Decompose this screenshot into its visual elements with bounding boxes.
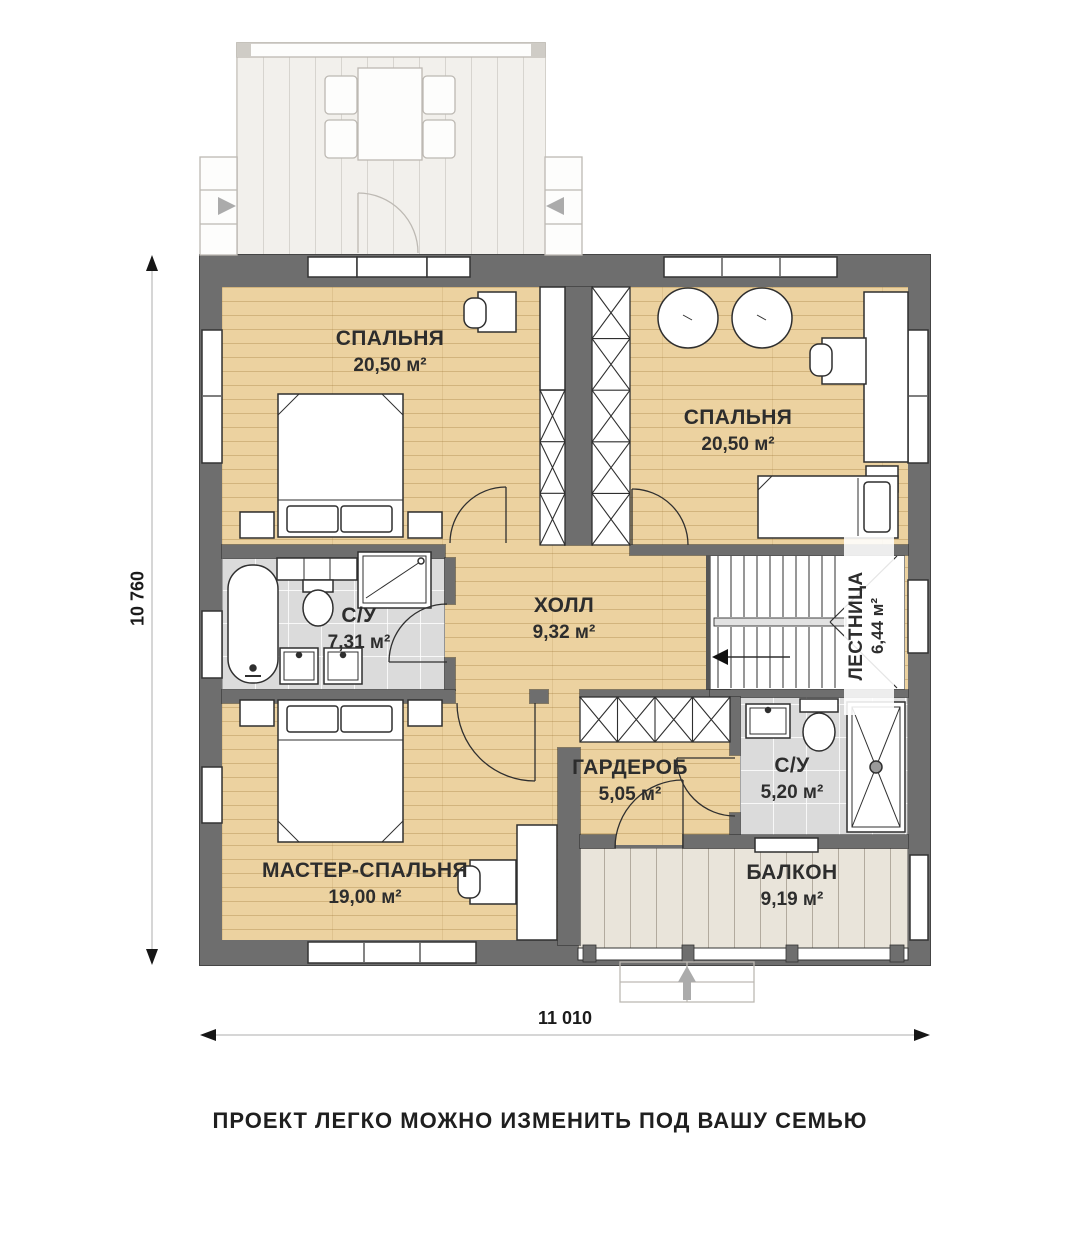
dimension-height-label: 10 760	[128, 554, 149, 644]
wall	[445, 558, 455, 604]
room-area: 5,20 м²	[692, 781, 892, 804]
room-label-master-bedroom: МАСТЕР-СПАЛЬНЯ 19,00 м²	[245, 858, 485, 909]
room-name: БАЛКОН	[692, 860, 892, 886]
wall	[222, 545, 445, 558]
room-label-bathroom-right: С/У 5,20 м²	[692, 753, 892, 804]
wall	[530, 690, 548, 703]
wall	[580, 835, 615, 848]
room-label-balcony: БАЛКОН 9,19 м²	[692, 860, 892, 911]
terrace-ghost-floor	[237, 43, 545, 257]
terrace-arrow-left-icon	[546, 197, 564, 215]
room-label-bathroom-left: С/У 7,31 м²	[259, 603, 459, 654]
entry-stairs-ghost	[620, 962, 754, 1002]
room-name: ЛЕСТНИЦА	[845, 541, 868, 711]
room-area: 6,44 м²	[868, 541, 889, 711]
floor-plan-page: СПАЛЬНЯ 20,50 м² СПАЛЬНЯ 20,50 м² ХОЛЛ 9…	[0, 0, 1080, 1243]
wall	[222, 690, 455, 703]
room-name: С/У	[259, 603, 459, 629]
caption: ПРОЕКТ ЛЕГКО МОЖНО ИЗМЕНИТЬ ПОД ВАШУ СЕМ…	[0, 1108, 1080, 1134]
room-area: 19,00 м²	[245, 886, 485, 909]
entry-arrow-up-icon	[678, 966, 696, 982]
dimension-width-label: 11 010	[480, 1008, 650, 1029]
terrace-arrow-right-icon	[218, 197, 236, 215]
room-area: 9,19 м²	[692, 888, 892, 911]
room-label-hall: ХОЛЛ 9,32 м²	[464, 593, 664, 644]
wall	[445, 658, 455, 690]
wall	[565, 287, 592, 545]
room-area: 9,32 м²	[464, 621, 664, 644]
room-label-bedroom-tr: СПАЛЬНЯ 20,50 м²	[638, 405, 838, 456]
room-name: МАСТЕР-СПАЛЬНЯ	[245, 858, 485, 884]
wall	[706, 555, 710, 690]
terrace-stairs-right	[545, 157, 582, 255]
room-label-bedroom-tl: СПАЛЬНЯ 20,50 м²	[290, 326, 490, 377]
wall	[730, 697, 740, 755]
room-area: 20,50 м²	[290, 354, 490, 377]
wall	[683, 835, 908, 848]
room-name: С/У	[692, 753, 892, 779]
room-name: СПАЛЬНЯ	[638, 405, 838, 431]
terrace-stairs-left	[200, 157, 237, 255]
room-label-stairs: ЛЕСТНИЦА 6,44 м²	[844, 537, 894, 715]
room-name: СПАЛЬНЯ	[290, 326, 490, 352]
room-name: ХОЛЛ	[464, 593, 664, 619]
wall	[580, 690, 730, 697]
room-area: 20,50 м²	[638, 433, 838, 456]
room-area: 7,31 м²	[259, 631, 459, 654]
